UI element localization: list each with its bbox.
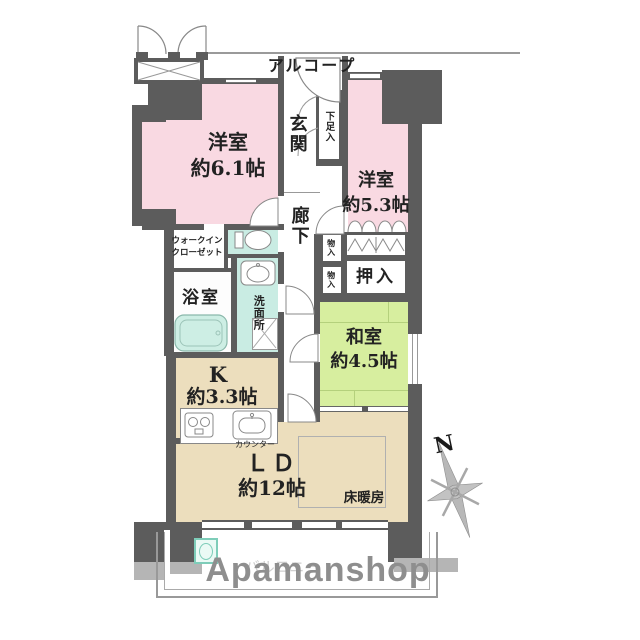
- door-swing-living: [286, 392, 316, 422]
- stove-icon: [184, 412, 214, 438]
- window-mullion: [336, 520, 342, 530]
- wall-segment: [382, 70, 442, 124]
- meter-box: [134, 58, 204, 84]
- bathroom-label: 浴室: [172, 288, 230, 308]
- japanese-room-label: 和室約4.5帖: [322, 326, 406, 374]
- window: [226, 79, 256, 83]
- north-label: N: [432, 430, 457, 460]
- ld-label: ＬＤ: [217, 450, 327, 478]
- tatami-line: [388, 302, 389, 322]
- wall-segment: [278, 228, 284, 422]
- wall-segment: [170, 268, 231, 272]
- compass: N: [424, 424, 508, 540]
- wall-segment: [318, 296, 408, 302]
- entrance-step-line: [284, 192, 320, 193]
- watermark: Apamanshop: [205, 551, 430, 590]
- western2-label: 洋室約5.3帖: [332, 168, 420, 218]
- kitchen-label: K: [176, 362, 260, 387]
- door-opening: [204, 224, 224, 230]
- entrance-label: 玄関: [286, 100, 308, 168]
- kitchen-size-label: 約3.3帖: [168, 386, 276, 409]
- wall-segment: [166, 356, 176, 528]
- door-opening: [278, 230, 284, 252]
- closet-cell: [344, 232, 408, 258]
- window-mullion: [292, 520, 302, 530]
- door-opening: [278, 196, 284, 224]
- wall-segment: [148, 84, 202, 120]
- door-swing-western1: [248, 196, 278, 226]
- washbasin-icon: [240, 260, 276, 286]
- storage1-label: 物入: [326, 235, 336, 261]
- sliding-door-tick: [362, 406, 368, 412]
- wall-segment: [228, 254, 278, 258]
- room-western-6-1: [202, 84, 278, 120]
- hanger-rod: [347, 235, 405, 255]
- counter-label: カウンター: [230, 440, 280, 450]
- wall-segment: [231, 258, 237, 352]
- wall-segment: [166, 352, 282, 358]
- kitchen-sink-icon: [232, 410, 272, 440]
- toilet-icon: [234, 228, 274, 252]
- porch-double-door: [136, 22, 208, 56]
- hallway-label: 廊下: [288, 198, 310, 254]
- shoe-box-label: 下足入: [323, 98, 334, 156]
- floor-heating-label: 床暖房: [324, 490, 404, 506]
- alcove-label: アルコープ: [252, 56, 372, 75]
- wic-label: ウォークインクローゼット: [167, 236, 227, 259]
- alcove-boundary-line: [205, 52, 520, 54]
- western1-label: 洋室約6.1帖: [162, 129, 294, 181]
- tatami-line: [320, 322, 408, 323]
- window: [408, 332, 422, 386]
- bathtub-icon: [174, 314, 228, 352]
- tatami-line: [320, 390, 408, 391]
- room-western-5-3-upper: [348, 80, 382, 124]
- window-mullion: [244, 520, 252, 530]
- oshiire-label: 押入: [344, 267, 408, 287]
- storage2-label: 物入: [326, 267, 336, 293]
- floor-plan: アルコープ 洋室約6.1帖 洋室約5.3帖 玄関 下足入 廊下 ウォークインクロ…: [0, 0, 640, 640]
- ld-size-label: 約12帖: [217, 476, 327, 500]
- door-swing-washroom: [284, 284, 314, 314]
- door-swing-japanese: [288, 332, 318, 362]
- washroom-label: 洗面所: [252, 286, 265, 340]
